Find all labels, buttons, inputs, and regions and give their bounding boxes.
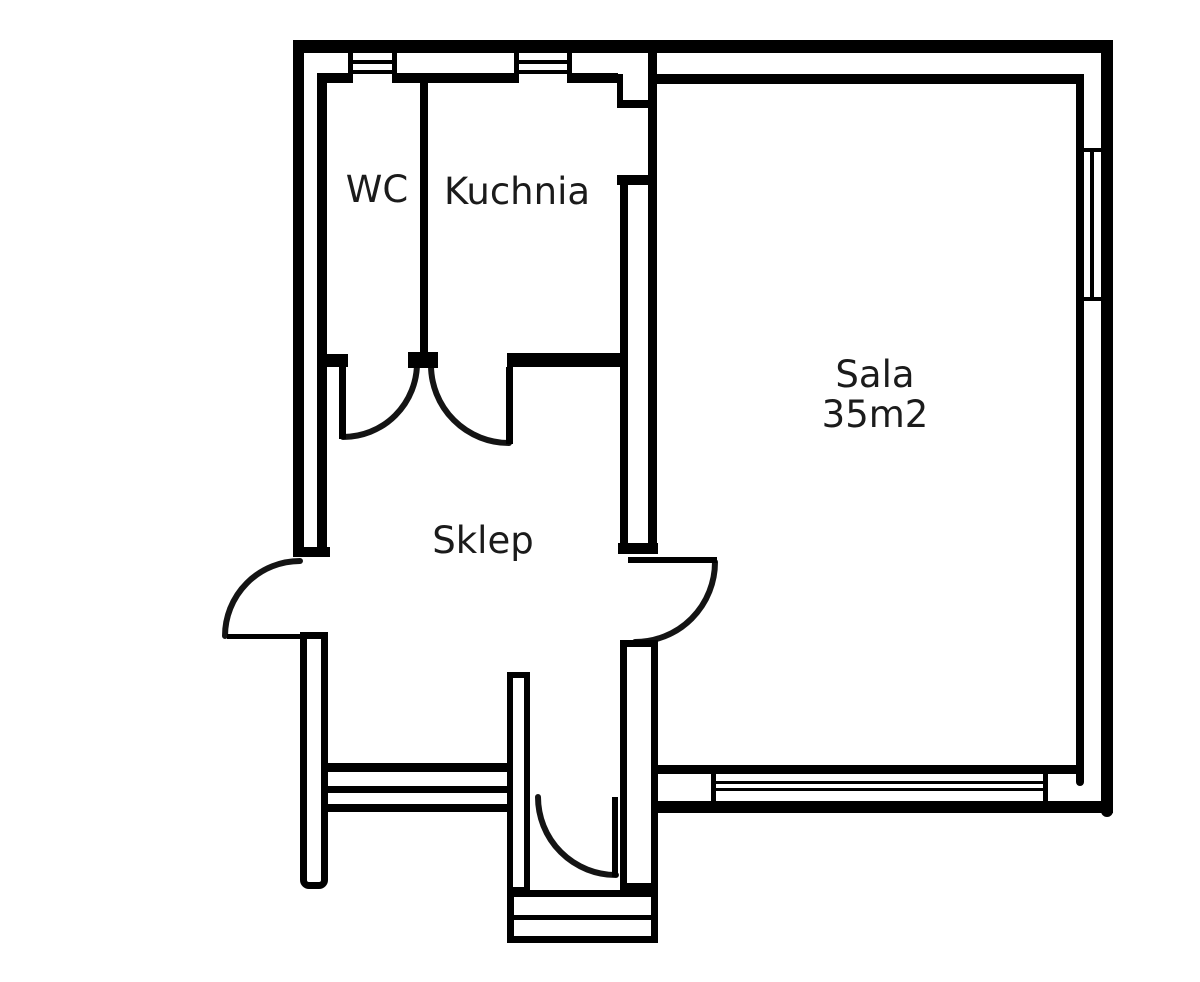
entrance-door-leaf [612,797,618,877]
wall-notch-horizontal [617,100,648,108]
window-bottom-glass-a [716,781,1043,784]
wall-top-inner-sala [657,74,1083,84]
storefront-left-glass [326,786,507,793]
door-arcs-layer [0,0,1200,982]
window-top1-glass-a [352,60,393,64]
room-label-wc: WC [346,170,408,210]
window-top2-jamb-left [514,53,519,83]
wall-left-inner [317,73,327,551]
kuchnia-door-leaf [506,367,513,444]
wc-door-leaf [339,365,346,439]
storefront-left-rail-bottom [326,804,507,812]
wall-kuchnia-bottom [507,353,621,367]
window-top2-glass-b [519,70,567,74]
sala-area: 35m2 [822,395,929,435]
left-exterior-door-arc [225,561,300,636]
wall-right-inner [1076,74,1084,786]
room-label-kuchnia: Kuchnia [444,172,590,212]
sala-door-arc [635,562,715,642]
sala-door-leaf [628,557,717,563]
entrance-door-arc [538,797,616,875]
window-top1-jamb-left [348,53,353,83]
left-exterior-door-leaf [227,634,302,639]
window-top2-glass-a [519,60,567,64]
wall-sala-bottom-outer [656,801,1113,813]
floor-plan: WC Kuchnia Sala 35m2 Sklep [0,0,1200,982]
door-hinge-block [408,352,438,368]
wall-vestibule-left [507,672,530,893]
kuchnia-door-arc [431,365,509,443]
wall-vestibule-right [620,640,658,890]
window-bottom-glass-b [716,788,1043,791]
wall-top-outer [295,40,1113,53]
wall-left-pillar [300,632,328,889]
wall-wc-kuchnia-divider [420,80,428,355]
wall-right-outer [1101,40,1113,817]
window-right-glass [1090,148,1094,301]
storefront-left-rail-top [326,763,507,772]
wall-kuchnia-sala-right [648,53,657,553]
wall-left-outer [293,40,304,557]
room-label-sklep: Sklep [432,521,533,561]
sala-name: Sala [822,355,929,395]
wall-top-inner-seg2 [397,73,517,83]
wall-duct-stub [617,175,648,185]
entrance-step-line [514,915,651,920]
room-label-sala: Sala 35m2 [822,355,929,435]
wall-sala-bottom-inner [656,765,1083,774]
wall-top-inner-seg3 [571,73,618,83]
window-top1-jamb-right [392,53,397,83]
window-bottom-jamb-right [1043,774,1048,801]
wall-kuchnia-sala-left [620,185,628,545]
wc-door-arc [343,363,417,437]
window-top2-jamb-right [567,53,572,83]
window-top1-glass-b [352,70,393,74]
